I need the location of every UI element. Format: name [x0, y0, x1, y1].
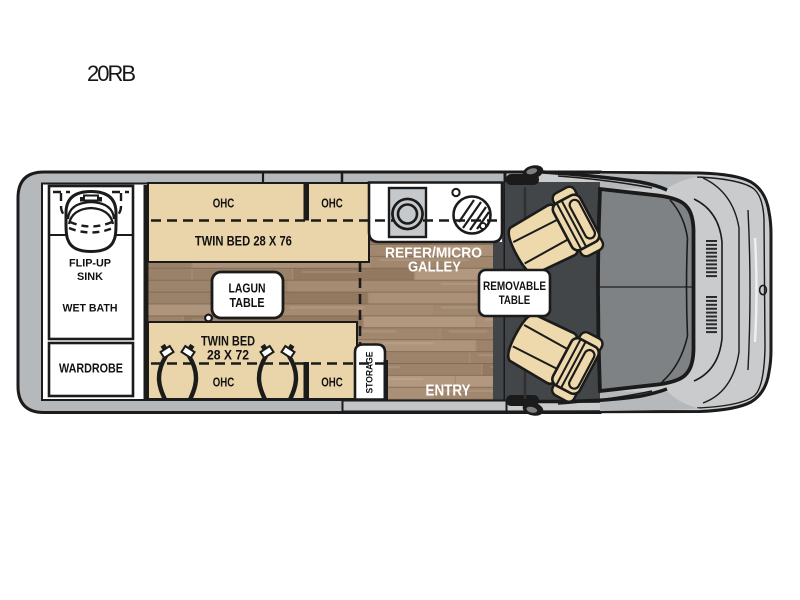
- svg-text:20RB: 20RB: [87, 61, 136, 86]
- svg-text:TWIN BED 28 X 76: TWIN BED 28 X 76: [195, 232, 292, 248]
- svg-text:REMOVABLE: REMOVABLE: [483, 279, 546, 293]
- svg-text:LAGUN: LAGUN: [229, 281, 266, 296]
- svg-text:OHC: OHC: [321, 196, 343, 211]
- svg-text:OHC: OHC: [321, 375, 343, 390]
- svg-text:STORAGE: STORAGE: [365, 352, 376, 394]
- svg-text:28 X 72: 28 X 72: [207, 346, 249, 362]
- svg-text:OHC: OHC: [213, 375, 235, 390]
- svg-text:ENTRY: ENTRY: [426, 383, 472, 400]
- svg-text:WET BATH: WET BATH: [63, 303, 118, 315]
- svg-text:GALLEY: GALLEY: [408, 259, 461, 276]
- svg-text:WARDROBE: WARDROBE: [59, 362, 123, 376]
- svg-text:TABLE: TABLE: [230, 295, 265, 310]
- svg-text:OHC: OHC: [213, 196, 235, 211]
- svg-text:FLIP-UP: FLIP-UP: [69, 258, 111, 270]
- svg-text:SINK: SINK: [77, 271, 103, 283]
- svg-text:TABLE: TABLE: [499, 293, 531, 307]
